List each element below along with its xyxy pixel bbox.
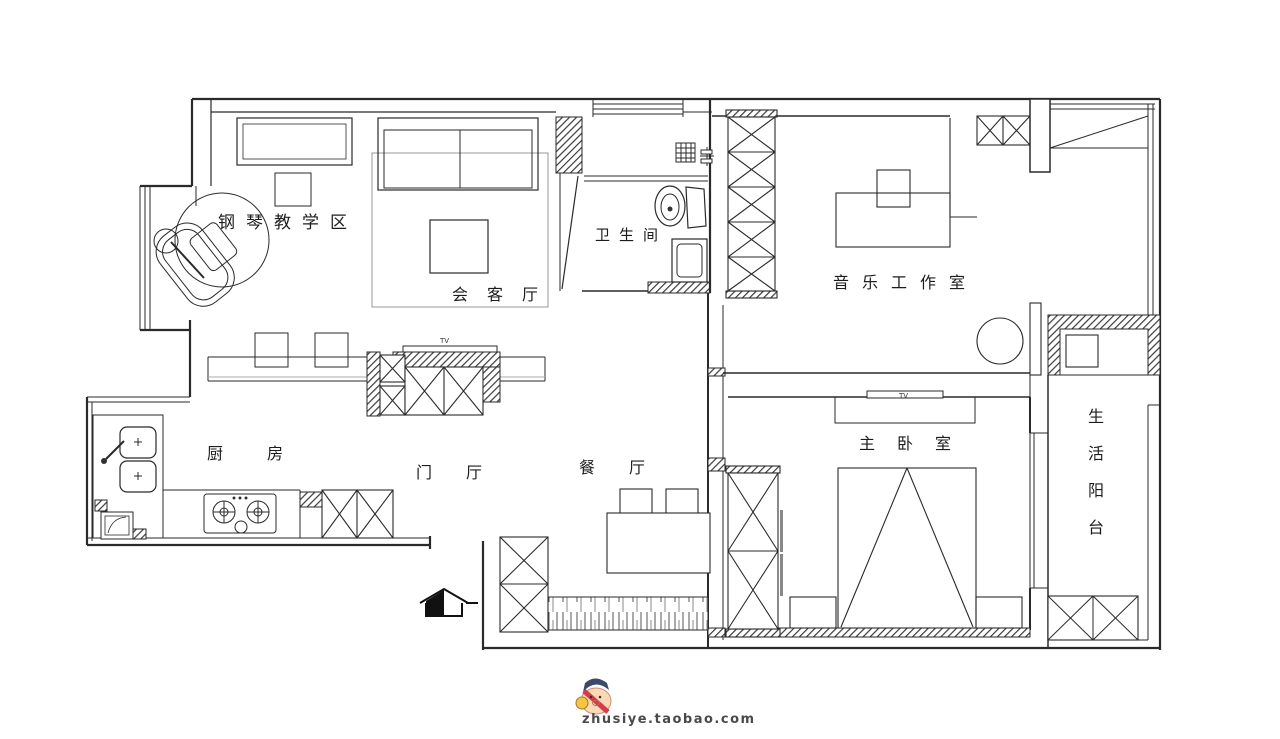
studio-top-cabinet — [977, 116, 1030, 145]
tv-label-bedroom: TV — [899, 393, 908, 400]
floor-plan-drawing — [0, 0, 1280, 739]
balcony — [1048, 315, 1160, 648]
shoe-cabinet-strip — [548, 597, 708, 630]
bench-sofa-icon — [237, 118, 352, 165]
dining-furniture — [500, 489, 710, 632]
faucet-icon — [106, 441, 124, 459]
entry-house-icon — [420, 589, 478, 616]
coffee-table-icon — [430, 220, 488, 273]
stove-icon — [204, 494, 276, 533]
studio-wardrobe — [726, 110, 777, 298]
room-label-piano-area: 钢琴教学区 — [218, 215, 358, 232]
stool-icon — [977, 318, 1023, 364]
dining-table-icon — [607, 513, 710, 573]
sofa-icon — [378, 118, 538, 190]
shower-fixture-icon — [700, 147, 714, 166]
room-label-bathroom: 卫生间 — [595, 228, 667, 243]
bar-stool-icon — [255, 333, 288, 367]
kitchen-stove-counter — [163, 490, 300, 538]
washbasin-icon — [672, 239, 707, 282]
foyer-tv-cabinet — [367, 346, 500, 416]
bedroom-wardrobe — [726, 466, 783, 637]
room-label-kitchen: 厨房 — [207, 446, 327, 462]
studio-desk — [836, 118, 977, 247]
tv-label-foyer: TV — [440, 338, 449, 345]
pig-logo-icon — [576, 679, 611, 715]
watermark-text: zhusiye.taobao.com — [582, 713, 756, 726]
kitchen-corner-fixture — [95, 492, 322, 539]
piano-stool-icon — [154, 229, 178, 253]
monitor-icon — [877, 170, 910, 207]
grand-piano-icon — [148, 193, 269, 314]
room-label-dining: 餐厅 — [579, 460, 679, 476]
toilet-icon — [655, 186, 706, 228]
floor-drain-icon — [676, 143, 695, 162]
foyer-cabinet — [322, 490, 393, 538]
room-label-balcony: 生活阳台 — [1086, 408, 1102, 588]
side-table-icon — [275, 173, 311, 206]
room-label-foyer: 门厅 — [416, 465, 516, 481]
nightstand-icon — [976, 597, 1022, 628]
room-label-master-bedroom: 主卧室 — [859, 436, 973, 452]
room-label-music-studio: 音乐工作室 — [833, 275, 978, 291]
tv-icon — [403, 346, 497, 352]
floor-plan: 钢琴教学区 会客厅 卫生间 音乐工作室 厨房 门厅 餐厅 主卧室 生活阳台 TV… — [0, 0, 1280, 739]
bar-stool-icon — [315, 333, 348, 367]
nightstand-icon — [790, 597, 836, 628]
bathroom-door-leaf — [562, 176, 578, 289]
hall-wall — [708, 293, 725, 648]
room-label-reception: 会客厅 — [452, 287, 557, 303]
bed-icon — [790, 468, 1022, 628]
